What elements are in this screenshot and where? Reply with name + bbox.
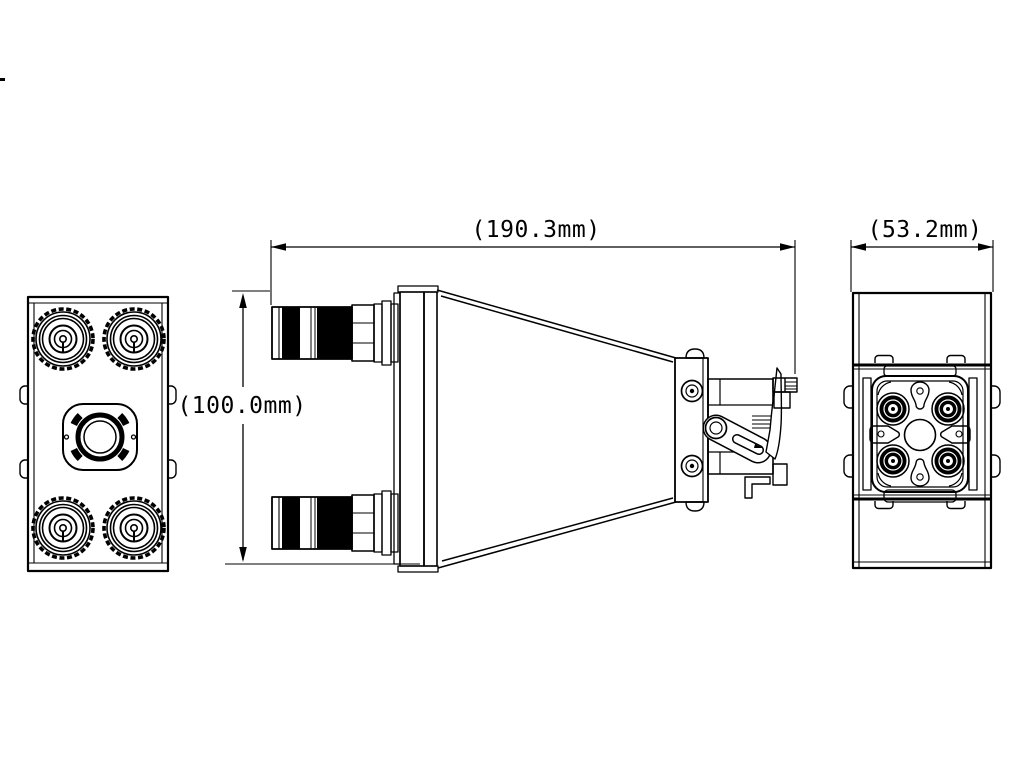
arrowhead-left xyxy=(271,243,286,251)
end-connector-top-left xyxy=(877,393,909,425)
arrowhead-left xyxy=(851,243,866,251)
hook-bracket xyxy=(745,477,770,498)
pan-screw-bottom xyxy=(686,502,704,511)
dimension-end-width: (53.2mm) xyxy=(851,217,993,292)
stray-mark xyxy=(0,78,5,81)
arrowhead-up xyxy=(239,293,247,308)
arrowhead-right xyxy=(978,243,993,251)
front-connector-top-right xyxy=(104,309,164,369)
end-connector-top-right xyxy=(932,393,964,425)
pan-screw-top xyxy=(686,349,704,358)
side-serration-lines xyxy=(752,416,772,428)
end-connector-plate xyxy=(863,366,977,502)
technical-drawing-canvas: (190.3mm) (53.2mm) (100.0mm) xyxy=(0,0,1024,768)
dimension-label-height: (100.0mm) xyxy=(177,393,306,419)
front-connector-bottom-right xyxy=(104,498,164,558)
dimension-label-end-width: (53.2mm) xyxy=(868,217,983,243)
arrowhead-right xyxy=(780,243,795,251)
side-mounting-plate xyxy=(394,286,438,572)
front-view xyxy=(20,297,176,571)
end-connector-bottom-left xyxy=(877,445,909,477)
front-view-side-tabs xyxy=(20,386,176,478)
side-pivot-bracket xyxy=(706,368,782,459)
socket-screw-upper xyxy=(682,381,703,402)
front-connector-top-left xyxy=(33,309,93,369)
socket-screw-lower xyxy=(682,456,703,477)
dimension-label-side-width: (190.3mm) xyxy=(471,217,600,243)
side-horn-body xyxy=(437,290,676,568)
end-view xyxy=(844,293,1000,568)
end-center-bore xyxy=(905,420,936,451)
technical-drawing-page: (190.3mm) (53.2mm) (100.0mm) xyxy=(0,0,1024,768)
side-coax-connector-lower xyxy=(272,491,398,555)
side-view xyxy=(272,286,797,572)
front-connector-bottom-left xyxy=(33,498,93,558)
front-center-hex-nut xyxy=(63,404,137,470)
arrowhead-down xyxy=(239,547,247,562)
bracket-pivot xyxy=(706,418,727,439)
side-coax-connector-upper xyxy=(272,301,398,365)
end-connectors xyxy=(877,393,964,477)
end-connector-bottom-right xyxy=(932,445,964,477)
